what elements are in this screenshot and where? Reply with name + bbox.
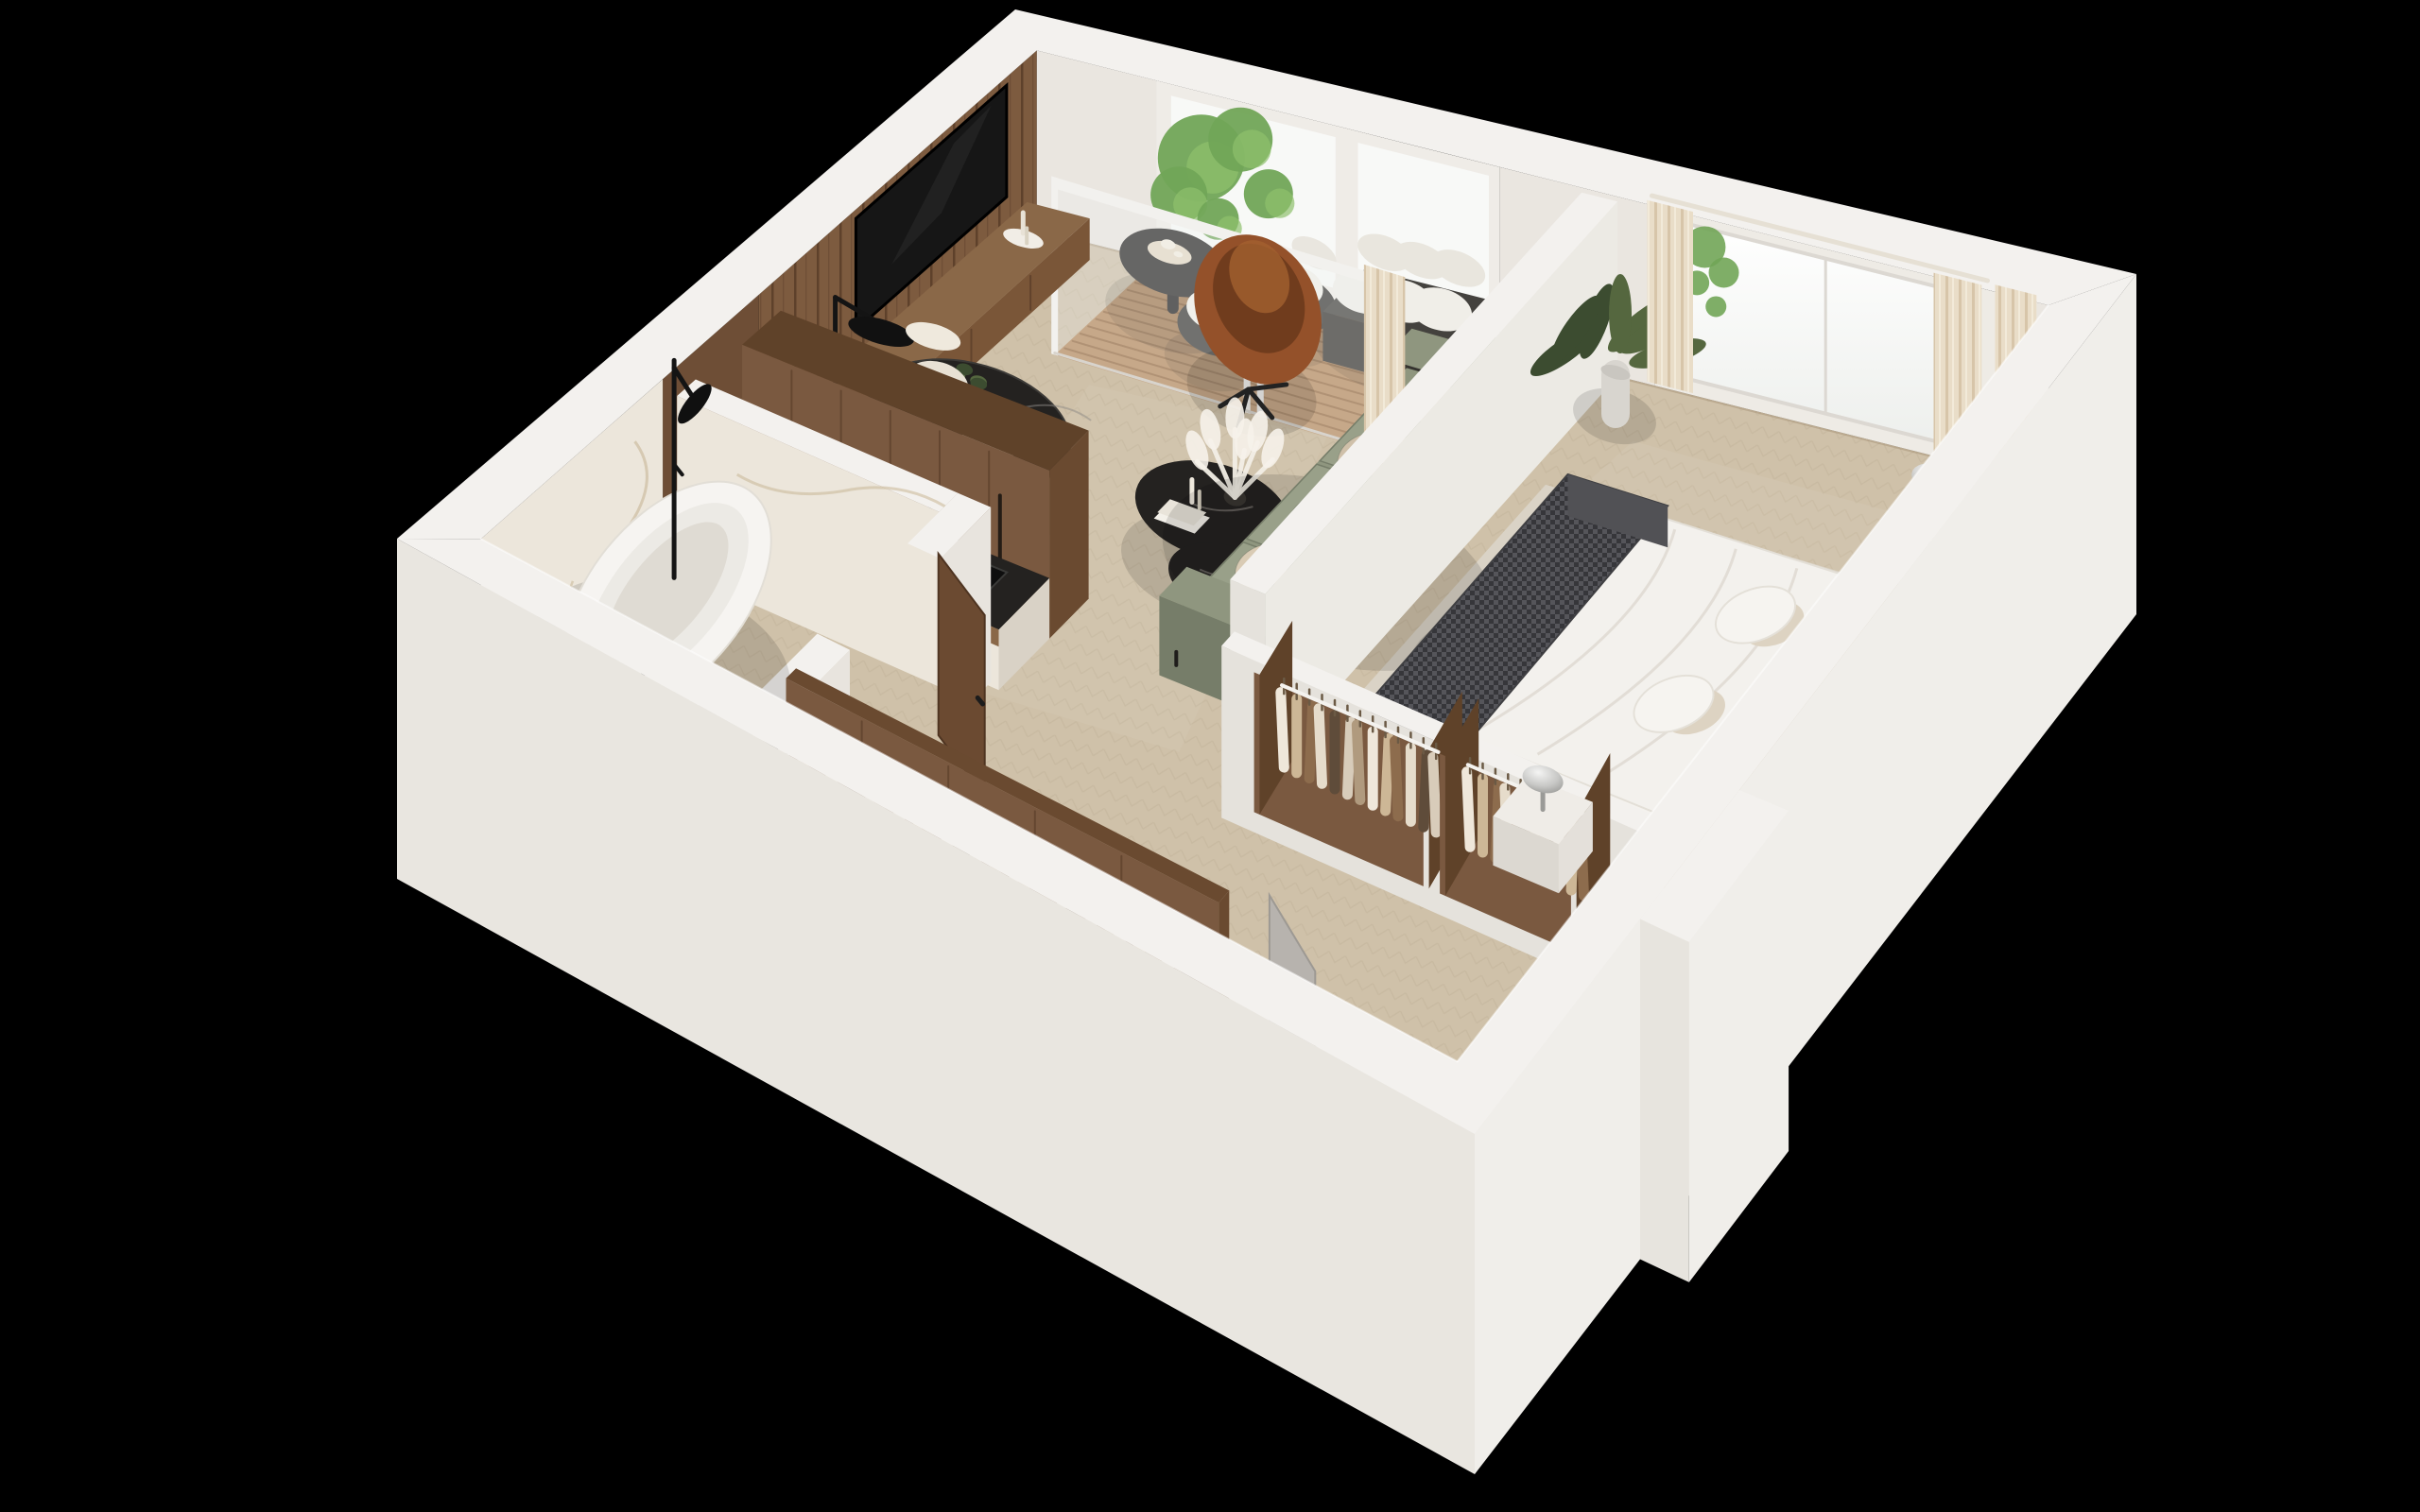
window-vine xyxy=(1705,296,1726,317)
hanging-clothes xyxy=(1467,772,1471,848)
plant-leaf xyxy=(1609,274,1632,353)
hanging-clothes xyxy=(1424,755,1427,828)
hanging-clothes xyxy=(1347,722,1350,795)
hanging-clothes xyxy=(1319,709,1322,784)
apartment-3d-floor-plan: 3D cutaway floor plan render of a one-be… xyxy=(0,0,2420,1512)
hanging-clothes xyxy=(1386,739,1390,812)
floor-plan-canvas: 3D cutaway floor plan render of a one-be… xyxy=(0,0,2420,1512)
curtain-panel xyxy=(1648,200,1694,393)
window-vine xyxy=(1709,258,1739,288)
hanging-clothes xyxy=(1281,693,1285,768)
hanging-clothes xyxy=(1395,741,1399,816)
hanging-clothes xyxy=(1309,706,1313,779)
hanging-clothes xyxy=(1357,725,1360,800)
hanging-clothes xyxy=(1433,757,1436,833)
